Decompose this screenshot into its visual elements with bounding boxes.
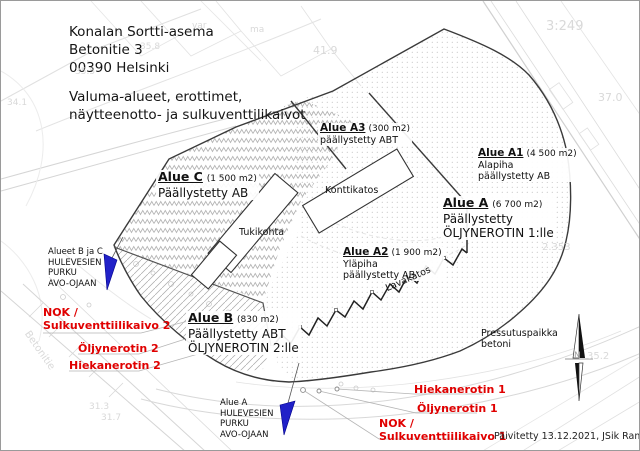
alue-a-size: (6 700 m2) [492, 200, 542, 210]
building-label-tukikohta: Tukikohta [239, 227, 284, 238]
parcel-number: 3:249 [546, 19, 583, 34]
elevation-37: 37.0 [598, 91, 623, 104]
alue-b-name: Alue B [188, 310, 233, 325]
elevation-34-1: 34.1 [7, 98, 27, 108]
elevation-35-5: 35.5 [75, 67, 95, 77]
alue-a3-name: Alue A3 [320, 122, 365, 134]
note-a-line4: AVO-OJAAN [220, 430, 274, 441]
pressutuspaikka-line2: betoni [481, 339, 558, 350]
alue-a1-name: Alue A1 [478, 147, 523, 159]
discharge-arrow-a [280, 401, 295, 435]
note-bc-line3: PURKU [48, 268, 103, 279]
title-block: Konalan Sortti-asema Betonitie 3 00390 H… [69, 23, 306, 124]
building-label-pressutuspaikka: Pressutuspaikka betoni [481, 328, 558, 350]
alue-b-desc2: ÖLJYNEROTIN 2:lle [188, 341, 299, 355]
bg-text-ma: ma [250, 25, 264, 35]
title-line-1: Konalan Sortti-asema [69, 23, 306, 41]
north-arrow-label: N [574, 351, 581, 361]
alue-a-desc2: ÖLJYNEROTIN 1:lle [443, 226, 554, 240]
alue-c-size: (1 500 m2) [207, 174, 257, 184]
parcel-2-353: 2.353 [542, 242, 571, 253]
alue-a2-size: (1 900 m2) [391, 248, 441, 258]
subtitle-line-1: Valuma-alueet, erottimet, [69, 88, 306, 106]
alue-b-size: (830 m2) [237, 315, 279, 325]
label-oljynerotin-1: Öljynerotin 1 [417, 402, 498, 415]
note-bc-line1: Alueet B ja C [48, 247, 103, 258]
note-bc-line4: AVO-OJAAN [48, 279, 103, 290]
pressutuspaikka-line1: Pressutuspaikka [481, 328, 558, 339]
discharge-note-a: Alue A HULEVESIEN PURKU AVO-OJAAN [220, 398, 274, 440]
site-plan-page: Konalan Sortti-asema Betonitie 3 00390 H… [0, 0, 640, 451]
title-gap [69, 77, 306, 88]
elevation-31-3: 31.3 [89, 402, 109, 412]
note-a-line3: PURKU [220, 419, 274, 430]
elevation-35-8: 35.8 [140, 42, 160, 52]
nok2-line1: NOK / [43, 306, 170, 319]
bg-text-var: var [192, 21, 207, 31]
alue-b-desc1: Päällystetty ABT [188, 327, 299, 341]
alue-a1-desc1: Alapiha [478, 160, 577, 171]
area-label-alue-a1: Alue A1 (4 500 m2) Alapiha päällystetty … [476, 148, 579, 182]
alue-a3-size: (300 m2) [368, 124, 410, 134]
note-a-line1: Alue A [220, 398, 274, 409]
updated-note: Päivitetty 13.12.2021, JSik Ramboll [494, 431, 640, 442]
elevation-31-7: 31.7 [101, 413, 121, 423]
discharge-arrow-bc [104, 254, 117, 290]
area-label-alue-a: Alue A (6 700 m2) Päällystetty ÖLJYNEROT… [441, 196, 556, 240]
building-label-konttikatos: Konttikatos [325, 185, 378, 196]
label-oljynerotin-2: Öljynerotin 2 [78, 342, 159, 355]
alue-a1-size: (4 500 m2) [526, 149, 576, 159]
alue-c-name: Alue C [158, 169, 203, 184]
label-hiekanerotin-1: Hiekanerotin 1 [414, 383, 506, 396]
area-label-alue-b: Alue B (830 m2) Päällystetty ABT ÖLJYNER… [186, 311, 301, 355]
label-nok-sulkuventtiilikaivo-2: NOK / Sulkuventtiilikaivo 2 [43, 306, 170, 332]
elevation-41-9: 41.9 [313, 44, 338, 57]
title-line-2: Betonitie 3 [69, 41, 306, 59]
alue-a2-name: Alue A2 [343, 246, 388, 258]
nok1-line2: Sulkuventtiilikaivo 1 [379, 430, 506, 443]
nok2-line2: Sulkuventtiilikaivo 2 [43, 319, 170, 332]
elevation-35-2: 35.2 [587, 351, 609, 362]
area-label-alue-c: Alue C (1 500 m2) Päällystetty AB [156, 170, 259, 200]
label-hiekanerotin-2: Hiekanerotin 2 [69, 359, 161, 372]
subtitle-line-2: näytteenotto- ja sulkuventtilikaivot [69, 106, 306, 124]
alue-c-desc: Päällystetty AB [158, 186, 257, 200]
note-a-line2: HULEVESIEN [220, 409, 274, 420]
note-bc-line2: HULEVESIEN [48, 258, 103, 269]
alue-a3-desc1: päällystetty ABT [320, 135, 410, 146]
alue-a-desc1: Päällystetty [443, 212, 554, 226]
alue-a-name: Alue A [443, 195, 488, 210]
nok1-line1: NOK / [379, 417, 506, 430]
title-line-3: 00390 Helsinki [69, 59, 306, 77]
alue-a1-desc2: päällystetty AB [478, 171, 577, 182]
discharge-note-bc: Alueet B ja C HULEVESIEN PURKU AVO-OJAAN [48, 247, 103, 289]
label-nok-sulkuventtiilikaivo-1: NOK / Sulkuventtiilikaivo 1 [379, 417, 506, 443]
area-label-alue-a3: Alue A3 (300 m2) päällystetty ABT [318, 123, 412, 146]
